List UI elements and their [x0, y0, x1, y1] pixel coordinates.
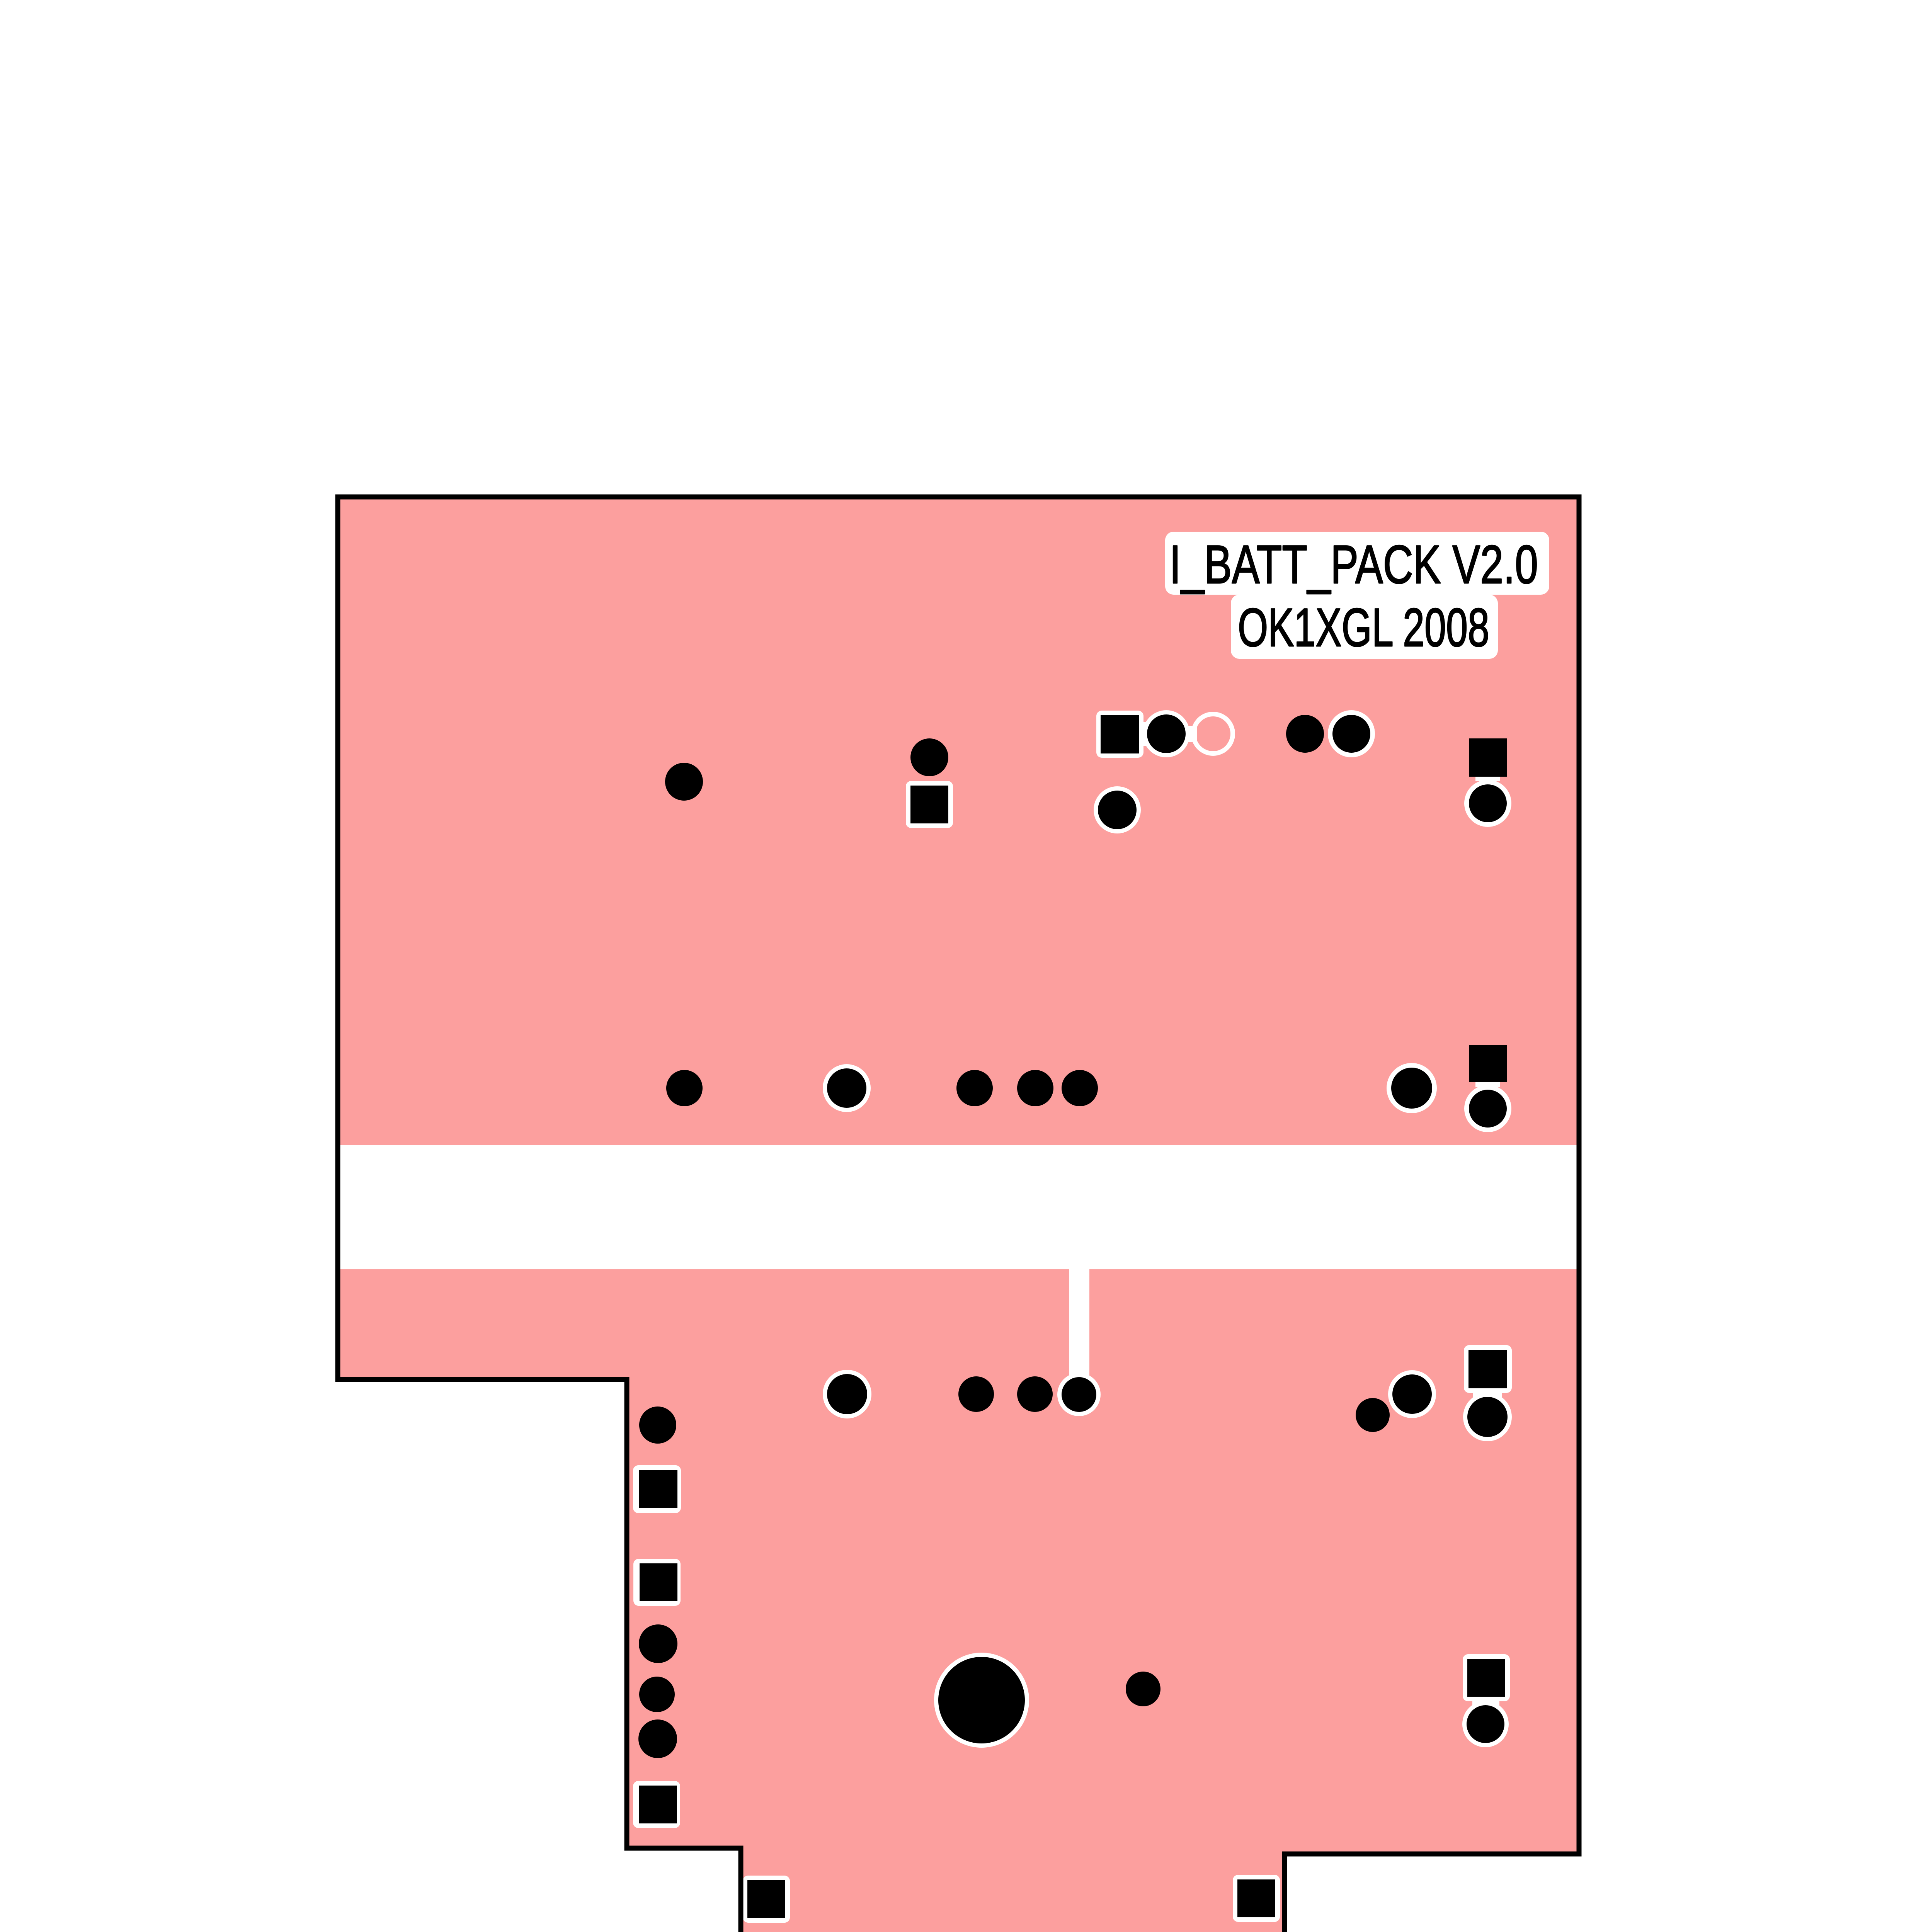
svg-text:OK1XGL 2008: OK1XGL 2008	[1238, 597, 1489, 658]
svg-text:I_BATT_PACK V2.0: I_BATT_PACK V2.0	[1169, 534, 1538, 595]
